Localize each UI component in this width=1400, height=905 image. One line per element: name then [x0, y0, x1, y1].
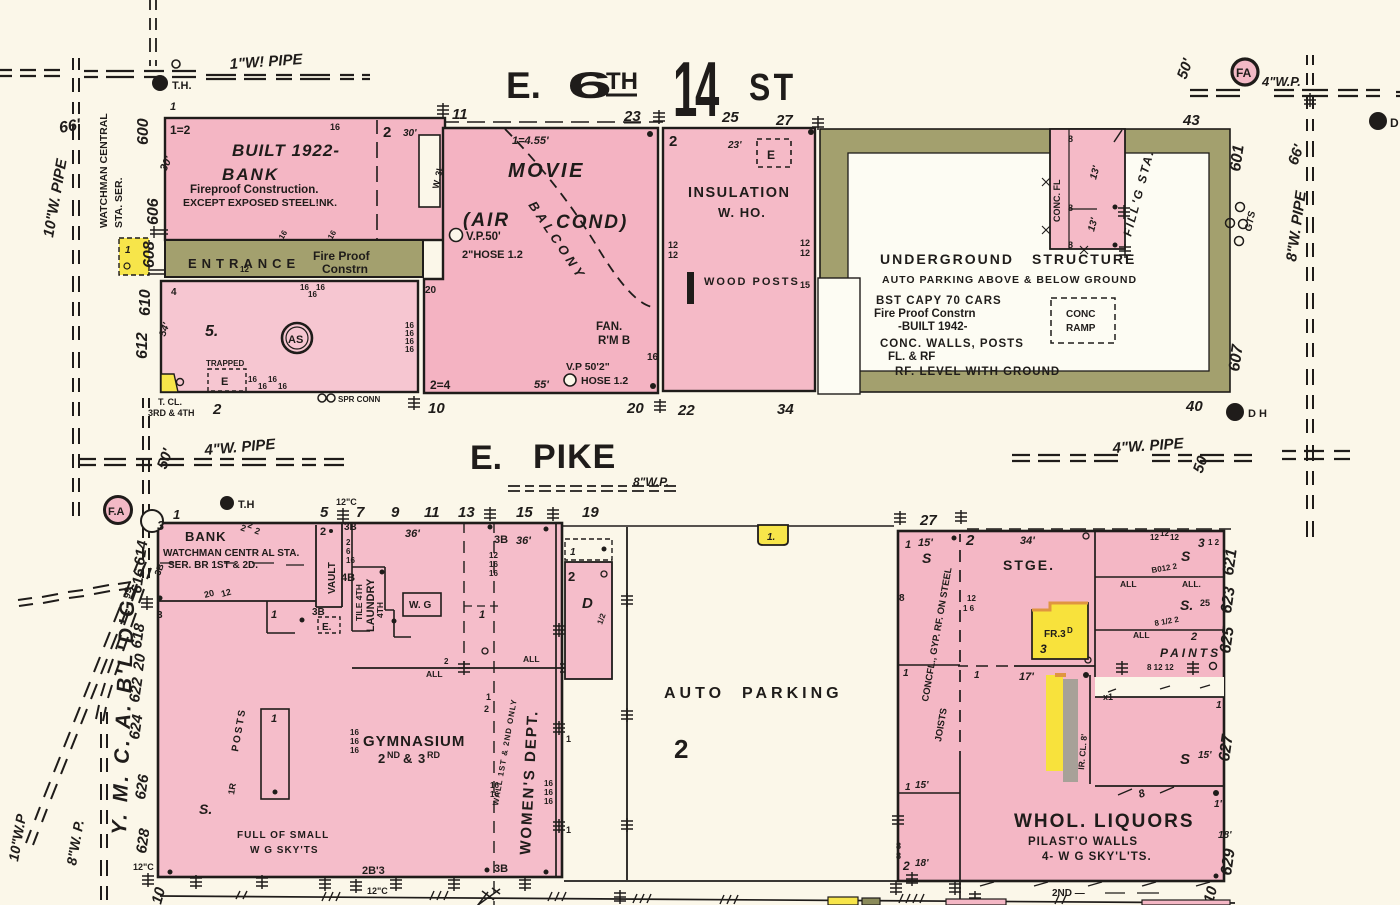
svg-text:15': 15'	[1198, 750, 1212, 761]
svg-text:RD: RD	[427, 750, 440, 760]
svg-text:15': 15'	[915, 780, 929, 791]
svg-text:4TH: 4TH	[375, 602, 385, 618]
svg-text:15: 15	[800, 280, 810, 290]
svg-text:1=2: 1=2	[170, 123, 191, 137]
svg-text:INSULATION: INSULATION	[688, 185, 791, 201]
svg-text:12"C: 12"C	[336, 497, 357, 507]
svg-text:16: 16	[647, 352, 659, 363]
svg-text:1 6: 1 6	[963, 604, 975, 613]
svg-text:ALL: ALL	[426, 669, 443, 679]
svg-text:16: 16	[544, 779, 553, 788]
svg-text:1: 1	[271, 713, 277, 725]
svg-text:1': 1'	[1214, 799, 1223, 810]
svg-text:4B: 4B	[341, 572, 355, 584]
svg-text:MOVIE: MOVIE	[508, 160, 585, 182]
svg-text:PAINTS: PAINTS	[1160, 646, 1221, 660]
svg-text:V.P 50'2": V.P 50'2"	[566, 361, 610, 373]
svg-text:19: 19	[582, 504, 599, 521]
svg-text:STA. SER.: STA. SER.	[113, 177, 125, 228]
svg-text:3: 3	[418, 751, 425, 766]
svg-text:18': 18'	[1218, 830, 1232, 841]
svg-text:&: &	[403, 751, 412, 766]
svg-text:UNDERGROUND: UNDERGROUND	[880, 251, 1014, 267]
svg-text:E: E	[767, 148, 775, 162]
svg-text:20: 20	[626, 400, 644, 417]
svg-text:16: 16	[268, 375, 277, 384]
svg-text:LIQUORS: LIQUORS	[1094, 811, 1195, 832]
svg-text:16: 16	[248, 375, 257, 384]
svg-text:610: 610	[137, 289, 154, 316]
svg-text:8 12 12: 8 12 12	[1147, 663, 1174, 672]
svg-text:30': 30'	[403, 128, 417, 139]
svg-text:36': 36'	[516, 535, 531, 547]
svg-text:43: 43	[1182, 112, 1200, 129]
svg-text:1: 1	[173, 507, 180, 522]
svg-text:8: 8	[896, 841, 901, 851]
svg-text:12: 12	[1150, 533, 1159, 542]
svg-text:RAMP: RAMP	[1066, 323, 1096, 334]
svg-text:E: E	[221, 376, 228, 388]
svg-text:S.: S.	[199, 801, 212, 817]
svg-text:25: 25	[1200, 598, 1210, 608]
svg-text:16: 16	[544, 797, 553, 806]
svg-text:D: D	[1390, 116, 1399, 130]
svg-text:(AIR: (AIR	[463, 210, 510, 231]
svg-text:1: 1	[903, 668, 909, 679]
svg-text:SPR CONN: SPR CONN	[338, 395, 380, 404]
svg-text:12: 12	[1160, 529, 1169, 538]
svg-text:ALL: ALL	[523, 654, 540, 664]
svg-text:1: 1	[905, 782, 911, 793]
svg-text:12"C: 12"C	[367, 886, 388, 896]
svg-text:1: 1	[479, 609, 485, 621]
svg-text:15: 15	[516, 504, 533, 521]
svg-text:ST: ST	[749, 66, 796, 108]
svg-text:2: 2	[212, 401, 222, 418]
svg-text:1: 1	[566, 825, 571, 835]
svg-text:V.P.50': V.P.50'	[466, 231, 501, 243]
svg-text:3: 3	[157, 610, 163, 621]
svg-text:2: 2	[346, 538, 351, 547]
svg-text:12"C: 12"C	[133, 862, 154, 872]
svg-text:20: 20	[425, 285, 437, 296]
svg-text:1: 1	[566, 734, 571, 744]
svg-text:1.: 1.	[767, 532, 775, 543]
svg-text:2: 2	[669, 133, 677, 150]
svg-text:12: 12	[668, 240, 678, 250]
svg-text:16: 16	[405, 345, 414, 354]
svg-text:FL. & RF: FL. & RF	[888, 351, 935, 363]
svg-text:ALL: ALL	[1133, 630, 1150, 640]
svg-text:2: 2	[674, 734, 688, 764]
svg-text:36': 36'	[405, 528, 420, 540]
svg-text:STGE.: STGE.	[1003, 557, 1055, 573]
svg-text:3B: 3B	[344, 522, 357, 533]
svg-text:AS: AS	[288, 334, 303, 346]
svg-text:D: D	[582, 595, 593, 612]
svg-text:BANK: BANK	[185, 529, 227, 544]
svg-text:17': 17'	[1019, 671, 1034, 683]
svg-text:1: 1	[125, 245, 131, 256]
svg-text:99: 99	[122, 586, 135, 599]
svg-text:T.H.: T.H.	[172, 80, 192, 92]
svg-text:16: 16	[330, 122, 340, 132]
svg-text:FAN.: FAN.	[596, 321, 622, 333]
svg-text:8: 8	[1068, 203, 1073, 213]
svg-text:CONC. FL: CONC. FL	[1052, 179, 1062, 222]
svg-text:COND): COND)	[556, 212, 628, 233]
svg-text:S: S	[1181, 548, 1191, 564]
svg-text:2=4: 2=4	[430, 378, 451, 392]
svg-text:CONC: CONC	[1066, 309, 1095, 320]
svg-text:WOOD POSTS: WOOD POSTS	[704, 276, 800, 288]
svg-text:RF. LEVEL WITH GROUND: RF. LEVEL WITH GROUND	[895, 366, 1060, 378]
svg-text:ALL: ALL	[1120, 579, 1137, 589]
svg-text:WATCHMAN CENTRAL: WATCHMAN CENTRAL	[98, 113, 110, 228]
svg-text:3B: 3B	[494, 863, 508, 875]
svg-text:12: 12	[800, 248, 810, 258]
svg-text:1: 1	[905, 539, 911, 551]
svg-text:10: 10	[428, 400, 445, 417]
svg-text:14: 14	[673, 47, 719, 133]
svg-text:E.: E.	[470, 439, 502, 477]
svg-text:8: 8	[1068, 240, 1073, 250]
svg-text:4"W.P.: 4"W.P.	[1261, 74, 1301, 89]
svg-text:40: 40	[1185, 398, 1203, 415]
svg-text:1: 1	[1216, 700, 1222, 711]
svg-text:626: 626	[132, 773, 152, 801]
svg-text:16: 16	[258, 382, 267, 391]
svg-text:2"HOSE 1.2: 2"HOSE 1.2	[462, 249, 523, 261]
svg-text:TH: TH	[606, 68, 638, 95]
svg-text:W G SKY'TS: W G SKY'TS	[250, 845, 319, 856]
svg-text:S.: S.	[1180, 597, 1193, 613]
svg-text:BST CAPY 70 CARS: BST CAPY 70 CARS	[876, 295, 1002, 307]
svg-text:18': 18'	[915, 858, 929, 869]
svg-text:34: 34	[777, 401, 794, 418]
svg-text:16: 16	[350, 728, 359, 737]
svg-text:S: S	[1180, 751, 1190, 768]
svg-text:WHOL.: WHOL.	[1014, 811, 1087, 832]
svg-text:23: 23	[623, 108, 641, 125]
svg-text:FULL OF SMALL: FULL OF SMALL	[237, 830, 329, 841]
svg-text:3RD & 4TH: 3RD & 4TH	[148, 408, 195, 418]
svg-text:8: 8	[899, 593, 905, 604]
svg-text:2: 2	[902, 859, 910, 873]
svg-text:T. CL.: T. CL.	[158, 397, 182, 407]
svg-text:614: 614	[131, 539, 151, 567]
svg-text:55': 55'	[534, 379, 549, 391]
svg-text:5.: 5.	[205, 323, 218, 340]
svg-text:1: 1	[570, 547, 576, 558]
svg-text:2: 2	[444, 657, 449, 666]
svg-text:34': 34'	[1020, 535, 1035, 547]
svg-text:606: 606	[145, 198, 162, 225]
svg-text:2: 2	[320, 526, 326, 538]
svg-text:8: 8	[1068, 134, 1073, 144]
svg-text:2B'3: 2B'3	[362, 865, 385, 877]
svg-text:FR.3: FR.3	[1044, 629, 1066, 640]
svg-text:2: 2	[383, 124, 391, 141]
svg-text:AUTO PARKING ABOVE & BELOW GRO: AUTO PARKING ABOVE & BELOW GROUND	[882, 274, 1137, 286]
svg-text:R'M B: R'M B	[598, 335, 630, 347]
svg-text:600: 600	[135, 118, 152, 145]
svg-text:12: 12	[967, 594, 976, 603]
svg-text:W. G: W. G	[409, 600, 431, 611]
svg-text:1: 1	[271, 609, 277, 621]
svg-text:8"W.P.: 8"W.P.	[633, 475, 669, 489]
svg-text:4: 4	[171, 287, 177, 298]
svg-text:8: 8	[896, 851, 901, 861]
svg-text:12: 12	[800, 238, 810, 248]
svg-text:16: 16	[278, 382, 287, 391]
svg-text:HOSE 1.2: HOSE 1.2	[581, 375, 628, 387]
svg-text:16: 16	[350, 746, 359, 755]
svg-text:ND: ND	[387, 750, 400, 760]
svg-text:BANK: BANK	[222, 165, 279, 184]
svg-text:23': 23'	[727, 140, 742, 151]
svg-text:STRUCTURE: STRUCTURE	[1032, 251, 1136, 267]
svg-text:Constrn: Constrn	[322, 262, 368, 276]
svg-text:2: 2	[484, 704, 489, 714]
svg-text:D H: D H	[1248, 408, 1267, 420]
svg-text:x1: x1	[1103, 692, 1113, 702]
svg-text:12: 12	[240, 265, 249, 274]
svg-text:16: 16	[316, 283, 325, 292]
svg-text:F.A: F.A	[108, 506, 125, 518]
svg-text:6: 6	[346, 547, 351, 556]
svg-text:12: 12	[668, 250, 678, 260]
svg-text:13: 13	[458, 504, 475, 521]
svg-text:WATCHMAN CENTR AL STA.: WATCHMAN CENTR AL STA.	[163, 548, 300, 559]
svg-text:22: 22	[677, 402, 695, 419]
svg-text:AUTO: AUTO	[664, 685, 725, 702]
svg-text:7: 7	[356, 504, 365, 521]
svg-text:-BUILT 1942-: -BUILT 1942-	[898, 321, 968, 333]
svg-text:1R: 1R	[226, 782, 238, 796]
svg-text:11: 11	[424, 504, 440, 521]
svg-text:2: 2	[965, 532, 975, 549]
svg-text:FA: FA	[1236, 66, 1252, 80]
svg-text:4- W G SKY'L'TS.: 4- W G SKY'L'TS.	[1042, 851, 1152, 863]
svg-text:TILE 4TH: TILE 4TH	[354, 584, 364, 621]
svg-text:2: 2	[1190, 631, 1197, 643]
svg-text:EXCEPT EXPOSED STEEL!NK.: EXCEPT EXPOSED STEEL!NK.	[183, 197, 337, 209]
svg-text:ALL.: ALL.	[1182, 579, 1201, 589]
svg-text:3: 3	[1040, 642, 1047, 656]
svg-text:E.: E.	[322, 622, 332, 633]
svg-text:1: 1	[170, 101, 176, 113]
svg-text:9: 9	[391, 504, 400, 521]
svg-text:15': 15'	[918, 537, 933, 549]
svg-text:TRAPPED: TRAPPED	[206, 359, 244, 368]
svg-text:S: S	[922, 550, 932, 566]
svg-text:E.: E.	[506, 65, 541, 106]
svg-text:5: 5	[320, 504, 329, 521]
svg-text:GYMNASIUM: GYMNASIUM	[363, 733, 465, 750]
svg-text:3B: 3B	[494, 534, 508, 546]
svg-text:12: 12	[1170, 533, 1179, 542]
svg-text:628: 628	[133, 827, 153, 855]
svg-text:27: 27	[919, 512, 937, 529]
svg-text:3: 3	[1198, 536, 1205, 550]
svg-text:PIKE: PIKE	[533, 438, 616, 476]
svg-text:BUILT 1922-: BUILT 1922-	[232, 141, 340, 160]
svg-text:3: 3	[157, 518, 165, 533]
svg-text:16: 16	[544, 788, 553, 797]
svg-text:16: 16	[490, 781, 499, 790]
svg-text:1 2: 1 2	[1208, 538, 1220, 547]
svg-text:16: 16	[490, 790, 499, 799]
svg-text:16: 16	[350, 737, 359, 746]
svg-text:T.H: T.H	[238, 499, 255, 511]
svg-text:W. HO.: W. HO.	[718, 205, 766, 220]
svg-text:2: 2	[568, 569, 575, 584]
svg-text:27: 27	[775, 112, 793, 129]
svg-text:11: 11	[452, 106, 468, 123]
svg-text:PARKING: PARKING	[742, 685, 843, 702]
svg-text:2: 2	[378, 751, 385, 766]
svg-text:SER. BR 1ST & 2D.: SER. BR 1ST & 2D.	[168, 560, 258, 571]
svg-text:1: 1	[974, 670, 980, 681]
svg-text:CONC. WALLS, POSTS: CONC. WALLS, POSTS	[880, 338, 1024, 350]
svg-text:VAULT: VAULT	[327, 562, 338, 594]
svg-text:Fire Proof Constrn: Fire Proof Constrn	[874, 308, 976, 320]
svg-text:Fireproof Construction.: Fireproof Construction.	[190, 184, 318, 196]
svg-text:1: 1	[486, 692, 491, 702]
svg-text:25: 25	[721, 109, 739, 126]
svg-text:D: D	[1067, 626, 1073, 635]
svg-text:16: 16	[346, 556, 355, 565]
svg-text:2ND —: 2ND —	[1052, 888, 1085, 899]
svg-text:612: 612	[134, 332, 151, 359]
svg-text:608: 608	[141, 241, 158, 268]
svg-text:PILAST'O WALLS: PILAST'O WALLS	[1028, 836, 1138, 848]
svg-text:Fire Proof: Fire Proof	[313, 249, 371, 263]
